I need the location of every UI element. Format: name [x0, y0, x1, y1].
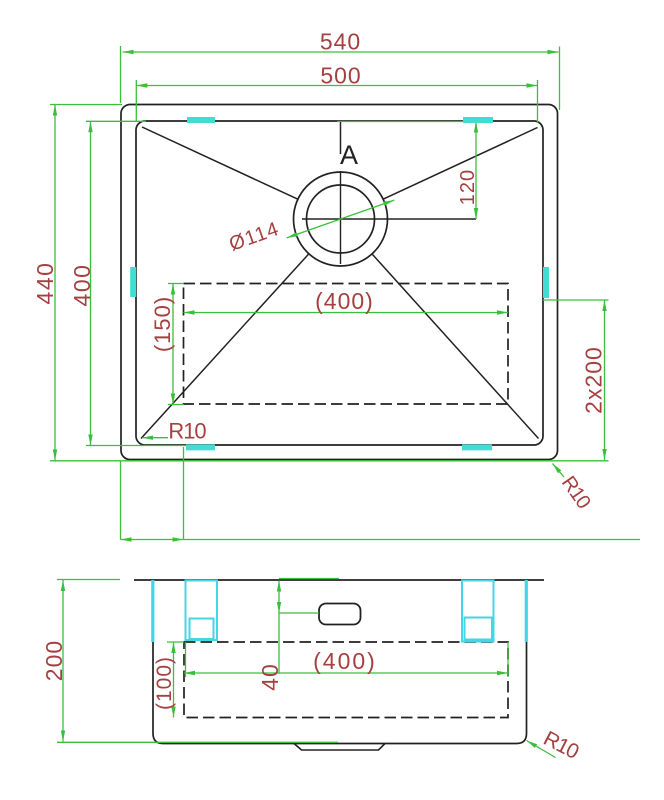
svg-text:40: 40 [257, 663, 283, 691]
svg-text:540: 540 [320, 29, 361, 55]
svg-text:200: 200 [41, 640, 67, 681]
svg-text:400: 400 [69, 264, 95, 307]
svg-text:(100): (100) [153, 656, 176, 710]
svg-text:R10: R10 [168, 419, 206, 444]
svg-text:120: 120 [457, 169, 479, 205]
svg-text:(150): (150) [150, 296, 175, 352]
svg-text:440: 440 [32, 262, 58, 305]
svg-text:2x200: 2x200 [581, 346, 607, 414]
svg-text:(400): (400) [315, 288, 374, 314]
svg-text:A: A [340, 140, 358, 170]
svg-text:(400): (400) [313, 648, 377, 674]
svg-text:500: 500 [320, 63, 361, 89]
